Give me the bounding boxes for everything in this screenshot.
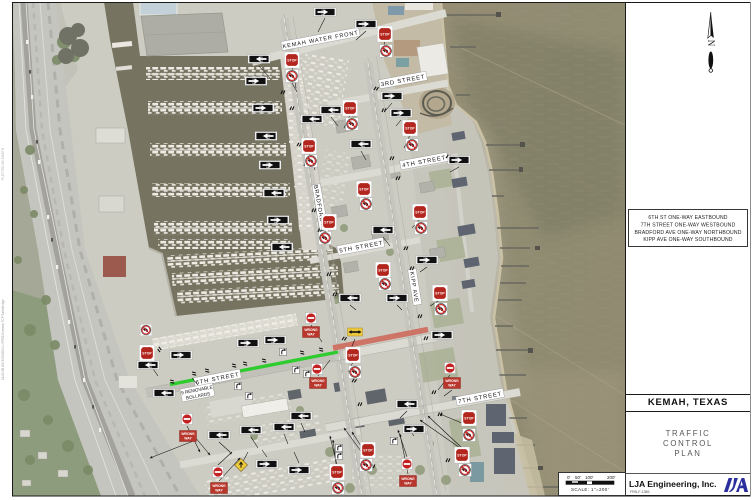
svg-text:7TH STREET ONE-WAY WESTBOUND: 7TH STREET ONE-WAY WESTBOUND	[641, 222, 736, 228]
svg-text:0': 0'	[567, 475, 571, 480]
svg-text:N: N	[706, 40, 716, 47]
svg-text:KIPP AVE ONE-WAY SOUTHBOUND: KIPP AVE ONE-WAY SOUTHBOUND	[643, 237, 732, 243]
svg-text:100': 100'	[585, 475, 594, 480]
svg-text:SCALE: 1"=200': SCALE: 1"=200'	[571, 487, 609, 492]
svg-text:BRADFORD AVE ONE-WAY NORTHBOUN: BRADFORD AVE ONE-WAY NORTHBOUND	[634, 230, 741, 236]
svg-text:50': 50'	[575, 475, 581, 480]
svg-text:200': 200'	[607, 475, 616, 480]
svg-text:6TH ST ONE-WAY EASTBOUND: 6TH ST ONE-WAY EASTBOUND	[648, 215, 727, 221]
